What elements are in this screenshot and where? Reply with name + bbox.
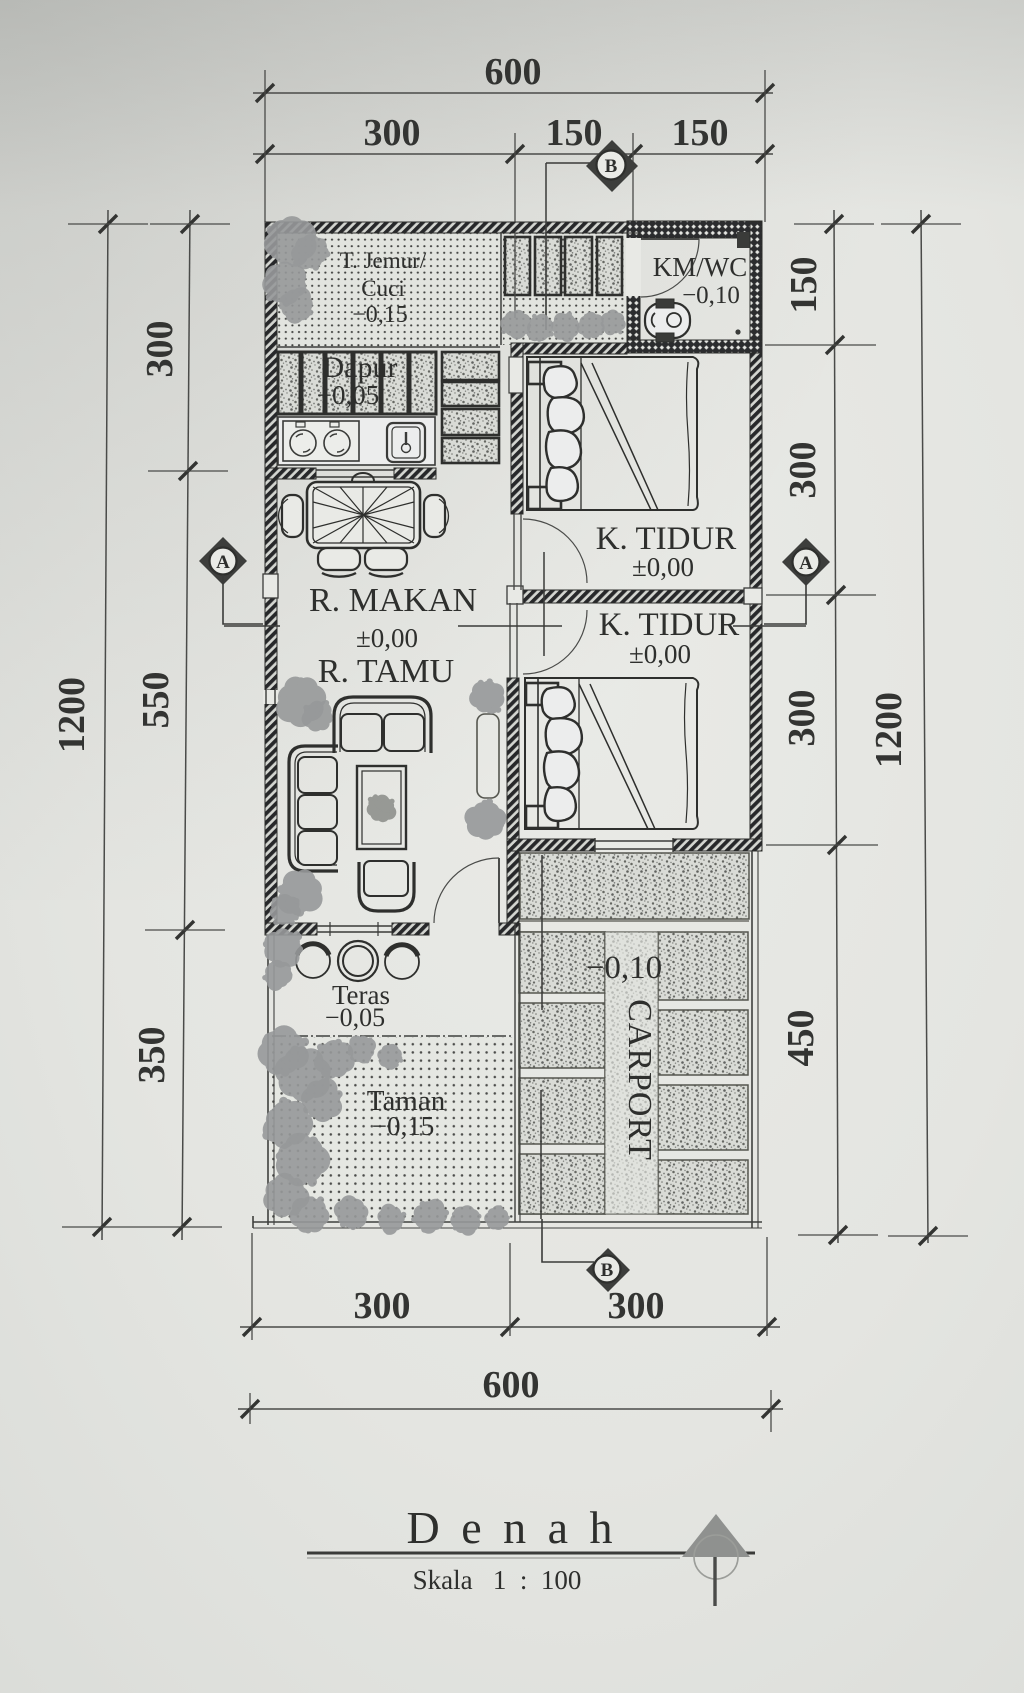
svg-text:−0,10: −0,10 [586, 950, 662, 986]
svg-text:−0,10: −0,10 [682, 282, 740, 309]
svg-text:K. TIDUR: K. TIDUR [599, 607, 740, 643]
svg-text:300: 300 [782, 442, 824, 499]
svg-text:A: A [799, 553, 813, 574]
svg-text:600: 600 [485, 51, 542, 93]
svg-text:−0,15: −0,15 [352, 302, 408, 328]
svg-text:R. TAMU: R. TAMU [318, 653, 454, 690]
svg-text:−0,05: −0,05 [317, 380, 379, 410]
svg-text:±0,00: ±0,00 [356, 623, 418, 653]
svg-text:R. MAKAN: R. MAKAN [309, 582, 477, 619]
svg-text:D e n a h: D e n a h [406, 1502, 617, 1553]
svg-text:550: 550 [135, 672, 177, 729]
svg-text:150: 150 [546, 112, 603, 154]
svg-text:A: A [216, 552, 230, 573]
svg-text:600: 600 [483, 1364, 540, 1406]
svg-text:−0,15: −0,15 [372, 1111, 434, 1141]
svg-text:B: B [605, 156, 618, 177]
svg-text:±0,00: ±0,00 [632, 552, 694, 582]
svg-text:300: 300 [139, 321, 181, 378]
svg-text:Skala 1 : 100: Skala 1 : 100 [413, 1565, 582, 1595]
svg-text:150: 150 [783, 257, 825, 314]
svg-text:CARPORT: CARPORT [621, 999, 658, 1161]
svg-text:B: B [601, 1260, 614, 1281]
svg-text:150: 150 [672, 112, 729, 154]
svg-text:KM/WC: KM/WC [653, 252, 748, 282]
svg-text:300: 300 [781, 690, 823, 747]
svg-text:−0,05: −0,05 [325, 1003, 385, 1032]
svg-text:350: 350 [131, 1027, 173, 1084]
svg-text:T. Jemur/: T. Jemur/ [340, 248, 427, 273]
svg-text:300: 300 [608, 1285, 665, 1327]
svg-text:±0,00: ±0,00 [629, 639, 691, 669]
svg-text:300: 300 [354, 1285, 411, 1327]
svg-text:1200: 1200 [51, 677, 93, 753]
svg-text:Cuci: Cuci [361, 276, 404, 301]
svg-text:300: 300 [364, 112, 421, 154]
svg-text:450: 450 [780, 1010, 822, 1067]
svg-text:1200: 1200 [868, 692, 910, 768]
